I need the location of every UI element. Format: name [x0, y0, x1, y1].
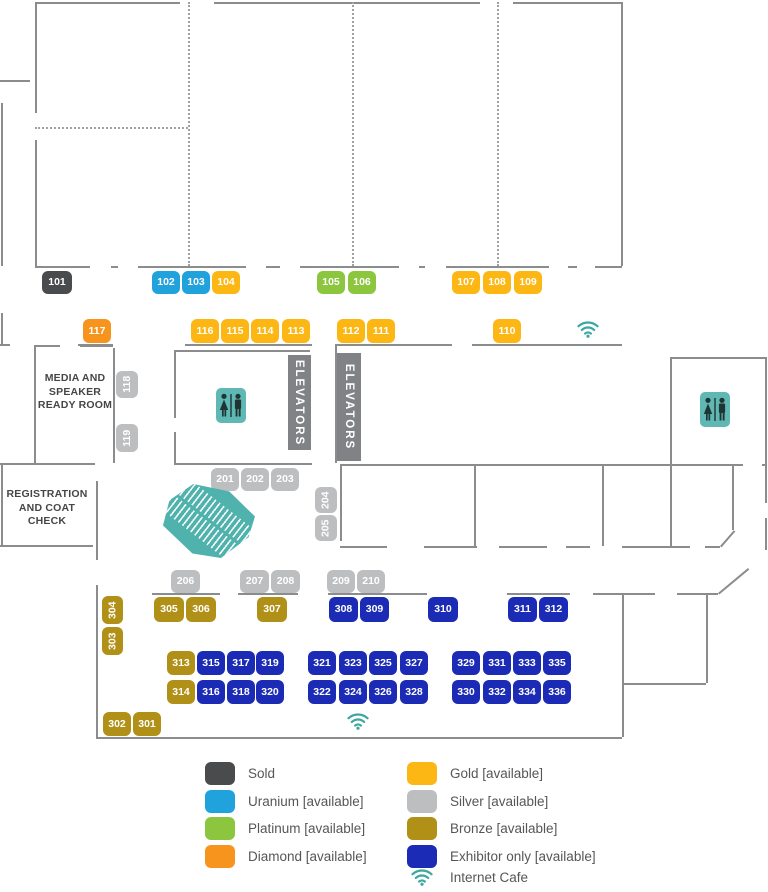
- booth-number: 113: [288, 326, 305, 337]
- wall-segment: [266, 266, 280, 268]
- booth-116[interactable]: 116: [191, 319, 219, 343]
- booth-number: 302: [108, 719, 126, 730]
- booth-332[interactable]: 332: [483, 680, 511, 704]
- booth-301[interactable]: 301: [133, 712, 161, 736]
- booth-310[interactable]: 310: [428, 597, 458, 622]
- wall-segment: [0, 344, 10, 346]
- booth-number: 305: [160, 604, 178, 615]
- booth-number: 317: [232, 658, 250, 669]
- booth-number: 308: [335, 604, 353, 615]
- booth-number: 321: [313, 658, 331, 669]
- booth-329[interactable]: 329: [452, 651, 480, 675]
- booth-number: 117: [89, 326, 106, 337]
- booth-number: 332: [488, 687, 506, 698]
- booth-108[interactable]: 108: [483, 271, 511, 294]
- booth-number: 116: [197, 326, 214, 337]
- legend-item-uranium: Uranium [available]: [205, 790, 364, 813]
- escalator-steps: [157, 474, 262, 569]
- booth-110[interactable]: 110: [493, 319, 521, 343]
- wall-segment: [446, 266, 549, 268]
- wall-segment: [238, 593, 298, 595]
- booth-315[interactable]: 315: [197, 651, 225, 675]
- booth-102[interactable]: 102: [152, 271, 180, 294]
- wall-segment: [340, 546, 387, 548]
- escalator-shape: [163, 484, 255, 558]
- legend-label: Platinum [available]: [248, 821, 365, 836]
- booth-number: 307: [263, 604, 281, 615]
- booth-321[interactable]: 321: [308, 651, 336, 675]
- wall-segment: [35, 2, 180, 4]
- legend-item-internet-cafe: Internet Cafe: [407, 868, 528, 886]
- wall-segment: [35, 2, 37, 113]
- wall-segment: [765, 518, 767, 550]
- escalator: [163, 484, 255, 558]
- legend-swatch-diamond: [205, 845, 235, 868]
- wall-segment: [474, 464, 476, 546]
- booth-307[interactable]: 307: [257, 597, 287, 622]
- booth-331[interactable]: 331: [483, 651, 511, 675]
- wall-segment: [705, 546, 720, 548]
- booth-328[interactable]: 328: [400, 680, 428, 704]
- wall-segment: [622, 546, 690, 548]
- legend-item-gold: Gold [available]: [407, 762, 543, 785]
- booth-number: 309: [366, 604, 384, 615]
- floor-plan: MEDIA AND SPEAKER READY ROOM REGISTRATIO…: [0, 0, 768, 892]
- booth-number: 110: [499, 326, 516, 337]
- registration-coat-check-label: REGISTRATION AND COAT CHECK: [0, 488, 94, 529]
- dashed-wall-segment: [35, 127, 188, 129]
- wall-segment: [0, 545, 93, 547]
- booth-number: 335: [548, 658, 566, 669]
- booth-number: 107: [457, 277, 475, 288]
- wall-segment: [96, 585, 98, 737]
- booth-312[interactable]: 312: [539, 597, 568, 622]
- booth-309[interactable]: 309: [360, 597, 389, 622]
- booth-number: 303: [107, 632, 118, 650]
- wall-segment: [0, 463, 95, 465]
- legend-label: Internet Cafe: [450, 870, 528, 885]
- booth-204[interactable]: 204: [315, 487, 337, 513]
- legend-item-silver: Silver [available]: [407, 790, 548, 813]
- wall-segment: [340, 464, 342, 541]
- dashed-wall-segment: [188, 2, 190, 266]
- wall-segment: [765, 357, 767, 503]
- booth-207[interactable]: 207: [240, 570, 269, 593]
- wall-segment: [593, 593, 655, 595]
- booth-number: 322: [313, 687, 331, 698]
- wall-segment: [80, 345, 113, 347]
- booth-number: 325: [374, 658, 392, 669]
- booth-119[interactable]: 119: [116, 424, 138, 452]
- wall-segment: [34, 345, 36, 463]
- wall-segment: [174, 432, 176, 463]
- booth-205[interactable]: 205: [315, 515, 337, 541]
- booth-206[interactable]: 206: [171, 570, 200, 593]
- booth-306[interactable]: 306: [186, 597, 216, 622]
- wall-segment: [419, 266, 425, 268]
- booth-number: 311: [514, 604, 531, 615]
- booth-number: 114: [257, 326, 274, 337]
- booth-330[interactable]: 330: [452, 680, 480, 704]
- booth-320[interactable]: 320: [256, 680, 284, 704]
- booth-117[interactable]: 117: [83, 319, 111, 343]
- wall-segment: [1, 313, 3, 344]
- booth-number: 105: [322, 277, 340, 288]
- dashed-wall-segment: [352, 2, 354, 266]
- wall-segment: [622, 683, 706, 685]
- wall-segment: [335, 344, 452, 346]
- booth-104[interactable]: 104: [212, 271, 240, 294]
- booth-107[interactable]: 107: [452, 271, 480, 294]
- legend-swatch-silver: [407, 790, 437, 813]
- booth-number: 209: [332, 576, 350, 587]
- wall-segment: [670, 357, 672, 546]
- legend-swatch-gold: [407, 762, 437, 785]
- booth-317[interactable]: 317: [227, 651, 255, 675]
- booth-number: 210: [362, 576, 380, 587]
- booth-number: 104: [217, 277, 235, 288]
- booth-number: 330: [457, 687, 475, 698]
- booth-number: 101: [48, 277, 66, 288]
- wall-segment: [621, 2, 623, 266]
- legend-item-diamond: Diamond [available]: [205, 845, 367, 868]
- legend-label: Diamond [available]: [248, 849, 367, 864]
- booth-number: 324: [344, 687, 362, 698]
- legend-label: Silver [available]: [450, 794, 548, 809]
- booth-318[interactable]: 318: [227, 680, 255, 704]
- wall-segment: [424, 546, 477, 548]
- legend-label: Gold [available]: [450, 766, 543, 781]
- media-speaker-ready-room-label: MEDIA AND SPEAKER READY ROOM: [36, 372, 114, 413]
- booth-number: 304: [107, 601, 118, 619]
- wall-segment: [1, 103, 3, 266]
- elevator-label: ELEVATORS: [343, 364, 355, 450]
- booth-208[interactable]: 208: [271, 570, 300, 593]
- wall-segment: [706, 593, 708, 683]
- booth-number: 333: [518, 658, 536, 669]
- booth-103[interactable]: 103: [182, 271, 210, 294]
- booth-333[interactable]: 333: [513, 651, 541, 675]
- booth-number: 323: [344, 658, 362, 669]
- wall-segment: [566, 546, 590, 548]
- booth-114[interactable]: 114: [251, 319, 279, 343]
- booth-number: 329: [457, 658, 475, 669]
- wall-segment: [96, 481, 98, 560]
- legend-swatch-sold: [205, 762, 235, 785]
- booth-112[interactable]: 112: [337, 319, 365, 343]
- booth-number: 206: [177, 576, 195, 587]
- internet-cafe-wifi-icon: [577, 320, 599, 343]
- wall-segment: [152, 593, 220, 595]
- booth-109[interactable]: 109: [514, 271, 542, 294]
- elevator-shaft-2: ELEVATORS: [337, 353, 361, 461]
- wall-segment: [328, 593, 427, 595]
- booth-311[interactable]: 311: [508, 597, 537, 622]
- booth-number: 112: [343, 326, 360, 337]
- booth-313[interactable]: 313: [167, 651, 195, 675]
- booth-336[interactable]: 336: [543, 680, 571, 704]
- booth-113[interactable]: 113: [282, 319, 310, 343]
- wall-segment: [670, 357, 765, 359]
- legend-item-bronze: Bronze [available]: [407, 817, 557, 840]
- booth-number: 331: [488, 658, 506, 669]
- booth-number: 106: [353, 277, 371, 288]
- wall-segment: [602, 464, 604, 546]
- wall-segment: [35, 140, 37, 266]
- booth-115[interactable]: 115: [221, 319, 249, 343]
- booth-302[interactable]: 302: [103, 712, 131, 736]
- elevator-label: ELEVATORS: [294, 359, 306, 445]
- booth-number: 314: [172, 687, 190, 698]
- booth-number: 313: [172, 658, 190, 669]
- booth-number: 334: [518, 687, 536, 698]
- legend-item-platinum: Platinum [available]: [205, 817, 365, 840]
- internet-cafe-wifi-icon: [347, 712, 369, 735]
- booth-number: 119: [122, 430, 133, 447]
- wall-segment: [300, 266, 399, 268]
- booth-316[interactable]: 316: [197, 680, 225, 704]
- booth-326[interactable]: 326: [369, 680, 397, 704]
- wall-segment: [595, 266, 622, 268]
- booth-203[interactable]: 203: [271, 468, 299, 491]
- booth-319[interactable]: 319: [256, 651, 284, 675]
- wall-segment: [113, 348, 115, 463]
- wall-segment: [174, 351, 176, 418]
- wall-segment: [0, 80, 30, 82]
- booth-number: 310: [434, 604, 452, 615]
- booth-number: 109: [519, 277, 537, 288]
- booth-number: 103: [187, 277, 205, 288]
- wall-segment: [111, 266, 118, 268]
- booth-106[interactable]: 106: [348, 271, 376, 294]
- booth-number: 204: [321, 491, 332, 509]
- booth-number: 319: [261, 658, 279, 669]
- legend-item-exhibitor: Exhibitor only [available]: [407, 845, 596, 868]
- restroom-icon: [700, 392, 730, 432]
- booth-304[interactable]: 304: [102, 596, 123, 624]
- booth-number: 111: [373, 326, 389, 337]
- wall-segment: [35, 266, 90, 268]
- wall-segment: [174, 350, 310, 352]
- booth-111[interactable]: 111: [367, 319, 395, 343]
- wall-segment: [1, 463, 3, 545]
- booth-209[interactable]: 209: [327, 570, 355, 593]
- booth-number: 203: [276, 474, 294, 485]
- booth-number: 208: [277, 576, 295, 587]
- wall-segment-diagonal: [718, 568, 749, 595]
- booth-324[interactable]: 324: [339, 680, 367, 704]
- legend-label: Uranium [available]: [248, 794, 364, 809]
- elevator-shaft-1: ELEVATORS: [288, 355, 311, 450]
- booth-number: 306: [192, 604, 210, 615]
- booth-number: 118: [122, 376, 133, 393]
- wall-segment: [513, 2, 621, 4]
- wall-segment: [732, 464, 734, 530]
- legend-swatch-exhibitor: [407, 845, 437, 868]
- wall-segment: [472, 344, 622, 346]
- wall-segment: [174, 463, 312, 465]
- booth-303[interactable]: 303: [102, 627, 123, 655]
- booth-number: 326: [374, 687, 392, 698]
- booth-335[interactable]: 335: [543, 651, 571, 675]
- wall-segment: [622, 593, 624, 737]
- booth-number: 328: [405, 687, 423, 698]
- booth-number: 102: [157, 277, 175, 288]
- booth-118[interactable]: 118: [116, 371, 138, 398]
- booth-101[interactable]: 101: [42, 271, 72, 294]
- booth-334[interactable]: 334: [513, 680, 541, 704]
- booth-number: 320: [261, 687, 279, 698]
- wall-segment: [185, 344, 312, 346]
- booth-105[interactable]: 105: [317, 271, 345, 294]
- booth-210[interactable]: 210: [357, 570, 385, 593]
- booth-number: 315: [202, 658, 220, 669]
- wall-segment: [507, 593, 570, 595]
- legend-swatch-uranium: [205, 790, 235, 813]
- legend-swatch-platinum: [205, 817, 235, 840]
- booth-number: 336: [548, 687, 566, 698]
- wall-segment: [568, 266, 577, 268]
- wall-segment: [677, 593, 718, 595]
- legend-label: Bronze [available]: [450, 821, 557, 836]
- wall-segment: [34, 345, 60, 347]
- booth-305[interactable]: 305: [154, 597, 184, 622]
- legend-item-sold: Sold: [205, 762, 275, 785]
- booth-number: 316: [202, 687, 220, 698]
- wall-segment: [340, 464, 743, 466]
- booth-number: 108: [488, 277, 506, 288]
- wall-segment: [96, 737, 622, 739]
- wall-segment: [499, 546, 547, 548]
- dashed-wall-segment: [497, 2, 499, 266]
- booth-323[interactable]: 323: [339, 651, 367, 675]
- restroom-icon: [216, 388, 246, 428]
- booth-number: 327: [405, 658, 423, 669]
- booth-number: 205: [321, 519, 332, 537]
- internet-cafe-wifi-icon: [407, 868, 437, 886]
- booth-number: 207: [246, 576, 264, 587]
- booth-number: 312: [545, 604, 563, 615]
- booth-327[interactable]: 327: [400, 651, 428, 675]
- booth-308[interactable]: 308: [329, 597, 358, 622]
- legend-label: Exhibitor only [available]: [450, 849, 596, 864]
- booth-325[interactable]: 325: [369, 651, 397, 675]
- booth-number: 115: [227, 326, 244, 337]
- booth-314[interactable]: 314: [167, 680, 195, 704]
- wall-segment: [138, 266, 246, 268]
- booth-322[interactable]: 322: [308, 680, 336, 704]
- booth-number: 301: [138, 719, 156, 730]
- wall-segment-diagonal: [720, 530, 735, 547]
- legend-swatch-bronze: [407, 817, 437, 840]
- legend-label: Sold: [248, 766, 275, 781]
- wall-segment: [214, 2, 480, 4]
- booth-number: 318: [232, 687, 250, 698]
